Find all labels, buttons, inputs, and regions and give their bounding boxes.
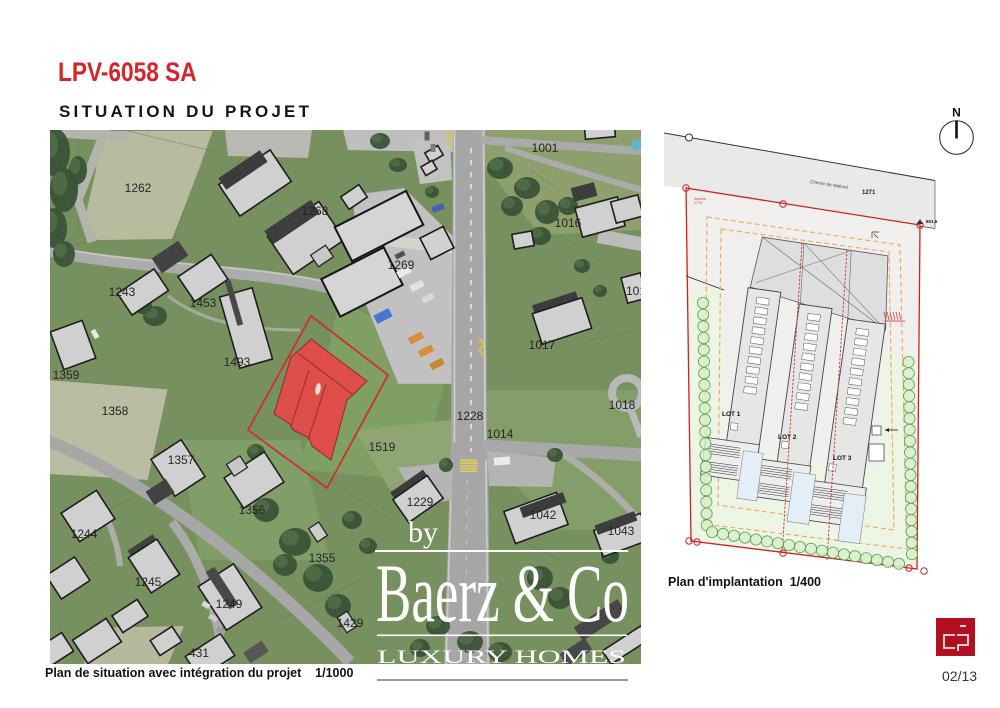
svg-text:801.5: 801.5 (926, 219, 938, 224)
svg-text:LUXURY HOMES: LUXURY HOMES (377, 647, 626, 664)
svg-text:1271: 1271 (862, 190, 876, 196)
svg-text:N: N (952, 106, 961, 120)
svg-text:LOT 2: LOT 2 (778, 434, 797, 441)
svg-text:LOT 3: LOT 3 (833, 455, 852, 462)
svg-text:Baerz & Co: Baerz & Co (376, 547, 629, 639)
svg-text:LOT 1: LOT 1 (722, 411, 741, 418)
svg-text:by: by (408, 516, 438, 549)
svg-text:1776: 1776 (694, 201, 702, 205)
